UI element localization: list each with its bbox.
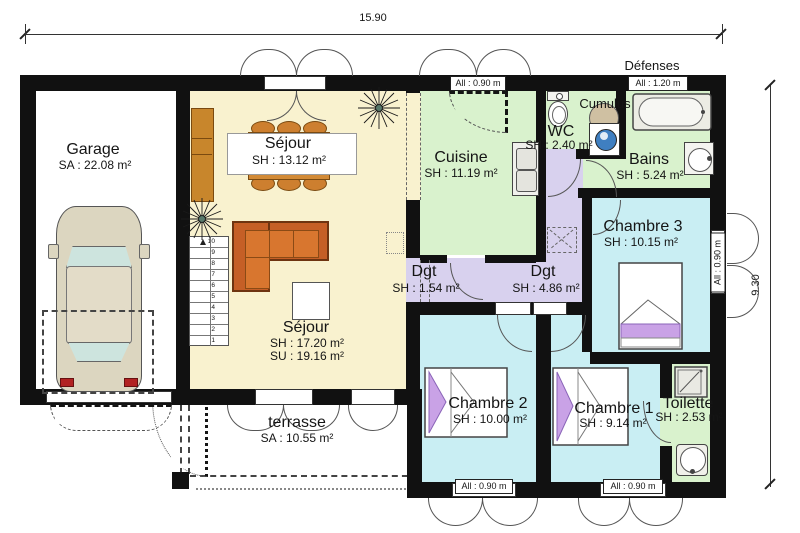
washing-machine-glass bbox=[600, 132, 608, 140]
terrasse-edge bbox=[190, 475, 418, 477]
room-area-terrasse: SA : 10.55 m² bbox=[261, 431, 334, 445]
window-arc bbox=[629, 498, 683, 526]
bathtub bbox=[632, 93, 712, 131]
room-label-terrasse: terrasse bbox=[268, 414, 326, 432]
room-label-dgt-petit: Dgt bbox=[412, 263, 437, 281]
room-label-chambre2: Chambre 2 bbox=[448, 395, 527, 413]
window-arc bbox=[419, 49, 477, 76]
bed bbox=[618, 262, 683, 350]
ceiling-hatch bbox=[547, 227, 577, 253]
room-area-dgt-grand: SH : 4.86 m² bbox=[512, 281, 579, 295]
room-area-chambre2: SH : 10.00 m² bbox=[453, 412, 527, 426]
room-area-sejour-dining: SH : 13.12 m² bbox=[252, 153, 326, 167]
window-arc bbox=[428, 498, 483, 526]
stair-step: 6 bbox=[190, 281, 228, 292]
sofa-cushion bbox=[269, 230, 294, 258]
wall bbox=[407, 389, 422, 498]
room-area-cuisine: SH : 11.19 m² bbox=[424, 166, 497, 180]
stairs: 10 9 8 7 6 5 4 3 2 1 bbox=[189, 236, 229, 346]
cabinet-divider bbox=[191, 154, 212, 155]
doormat bbox=[386, 232, 404, 254]
washbasin-tap bbox=[690, 469, 695, 474]
washbasin-tap bbox=[707, 156, 712, 161]
stair-step: 9 bbox=[190, 248, 228, 259]
floor-plan: 15.90 9.30 Al bbox=[0, 0, 800, 533]
garage-door-arc bbox=[50, 404, 172, 431]
stair-step: 2 bbox=[190, 325, 228, 336]
room-label-dgt-grand: Dgt bbox=[531, 263, 556, 281]
cabinet-divider bbox=[191, 138, 212, 139]
window-arc bbox=[727, 213, 759, 264]
room-area2-sejour-living: SU : 19.16 m² bbox=[270, 349, 344, 363]
plant-icon bbox=[357, 86, 401, 130]
room-area-chambre3: SH : 10.15 m² bbox=[604, 235, 678, 249]
window-label: All : 0.90 m bbox=[711, 233, 726, 293]
room-label-sejour-dining: Séjour bbox=[265, 135, 311, 153]
window-arc bbox=[578, 498, 630, 526]
car-windshield bbox=[66, 246, 132, 268]
dimension-line-right bbox=[770, 85, 771, 487]
window-arc bbox=[482, 498, 538, 526]
path-dotted-line bbox=[196, 488, 430, 490]
dimension-line-top bbox=[25, 34, 722, 35]
room-label-cuisine: Cuisine bbox=[434, 149, 487, 167]
room-area-sejour-living: SH : 17.20 m² bbox=[270, 336, 344, 350]
terrasse-post bbox=[172, 472, 189, 489]
stair-step: 8 bbox=[190, 259, 228, 270]
room-area-toilette: SH : 2.53 m² bbox=[655, 410, 722, 424]
stair-step: 5 bbox=[190, 292, 228, 303]
room-area-dgt-petit: SH : 1.54 m² bbox=[392, 281, 459, 295]
car-mirror bbox=[48, 244, 59, 259]
parking-zone-dashed bbox=[42, 310, 154, 394]
window-label: All : 0.90 m bbox=[455, 479, 513, 494]
window-arc bbox=[240, 49, 297, 76]
room-area-bains: SH : 5.24 m² bbox=[616, 168, 683, 182]
window-label: All : 0.90 m bbox=[603, 479, 663, 494]
window-arc bbox=[476, 49, 531, 76]
wall bbox=[20, 75, 36, 405]
plant-icon bbox=[180, 197, 224, 241]
wall bbox=[485, 255, 536, 263]
wall bbox=[536, 315, 551, 482]
cabinet bbox=[191, 108, 214, 202]
toilet-bowl-inner bbox=[552, 106, 566, 124]
window-label: All : 0.90 m bbox=[450, 76, 506, 91]
sink-basin bbox=[516, 170, 537, 192]
wall bbox=[590, 352, 726, 364]
stair-step: 4 bbox=[190, 303, 228, 314]
car-mirror bbox=[139, 244, 150, 259]
room-label-sejour-living: Séjour bbox=[283, 319, 329, 337]
shower bbox=[674, 366, 708, 398]
wall bbox=[582, 198, 592, 352]
entry-door-sill bbox=[264, 76, 326, 90]
stairs-rail-line bbox=[210, 236, 211, 346]
defenses-label: Défenses bbox=[625, 58, 680, 73]
door-arc bbox=[348, 405, 398, 431]
open-passage bbox=[406, 93, 421, 200]
dimension-width-label: 15.90 bbox=[359, 12, 387, 24]
room-area-wc: SH : 2.40 m² bbox=[525, 138, 592, 152]
room-label-chambre3: Chambre 3 bbox=[603, 218, 682, 236]
terrasse-door-sill bbox=[351, 389, 395, 405]
stair-step: 7 bbox=[190, 270, 228, 281]
sofa-cushion bbox=[245, 230, 270, 258]
cumulus-label: Cumulus bbox=[579, 96, 630, 111]
window-label: All : 1.20 m bbox=[628, 76, 688, 91]
dimension-stub bbox=[722, 24, 723, 44]
dimension-stub bbox=[25, 24, 26, 44]
stair-step: 3 bbox=[190, 314, 228, 325]
room-label-garage: Garage bbox=[66, 141, 119, 159]
door-sill bbox=[495, 302, 531, 315]
room-area-chambre1: SH : 9.14 m² bbox=[579, 416, 646, 430]
stair-step: 1 bbox=[190, 336, 228, 347]
terrasse-door-sill bbox=[255, 389, 313, 405]
room-area-garage: SA : 22.08 m² bbox=[59, 158, 132, 172]
door-sill bbox=[533, 302, 567, 315]
toilet-button bbox=[556, 93, 563, 100]
coffee-table bbox=[292, 282, 330, 320]
sofa-cushion bbox=[245, 257, 270, 289]
window-arc bbox=[296, 49, 353, 76]
room-label-bains: Bains bbox=[629, 151, 669, 169]
sofa-cushion bbox=[293, 230, 319, 258]
